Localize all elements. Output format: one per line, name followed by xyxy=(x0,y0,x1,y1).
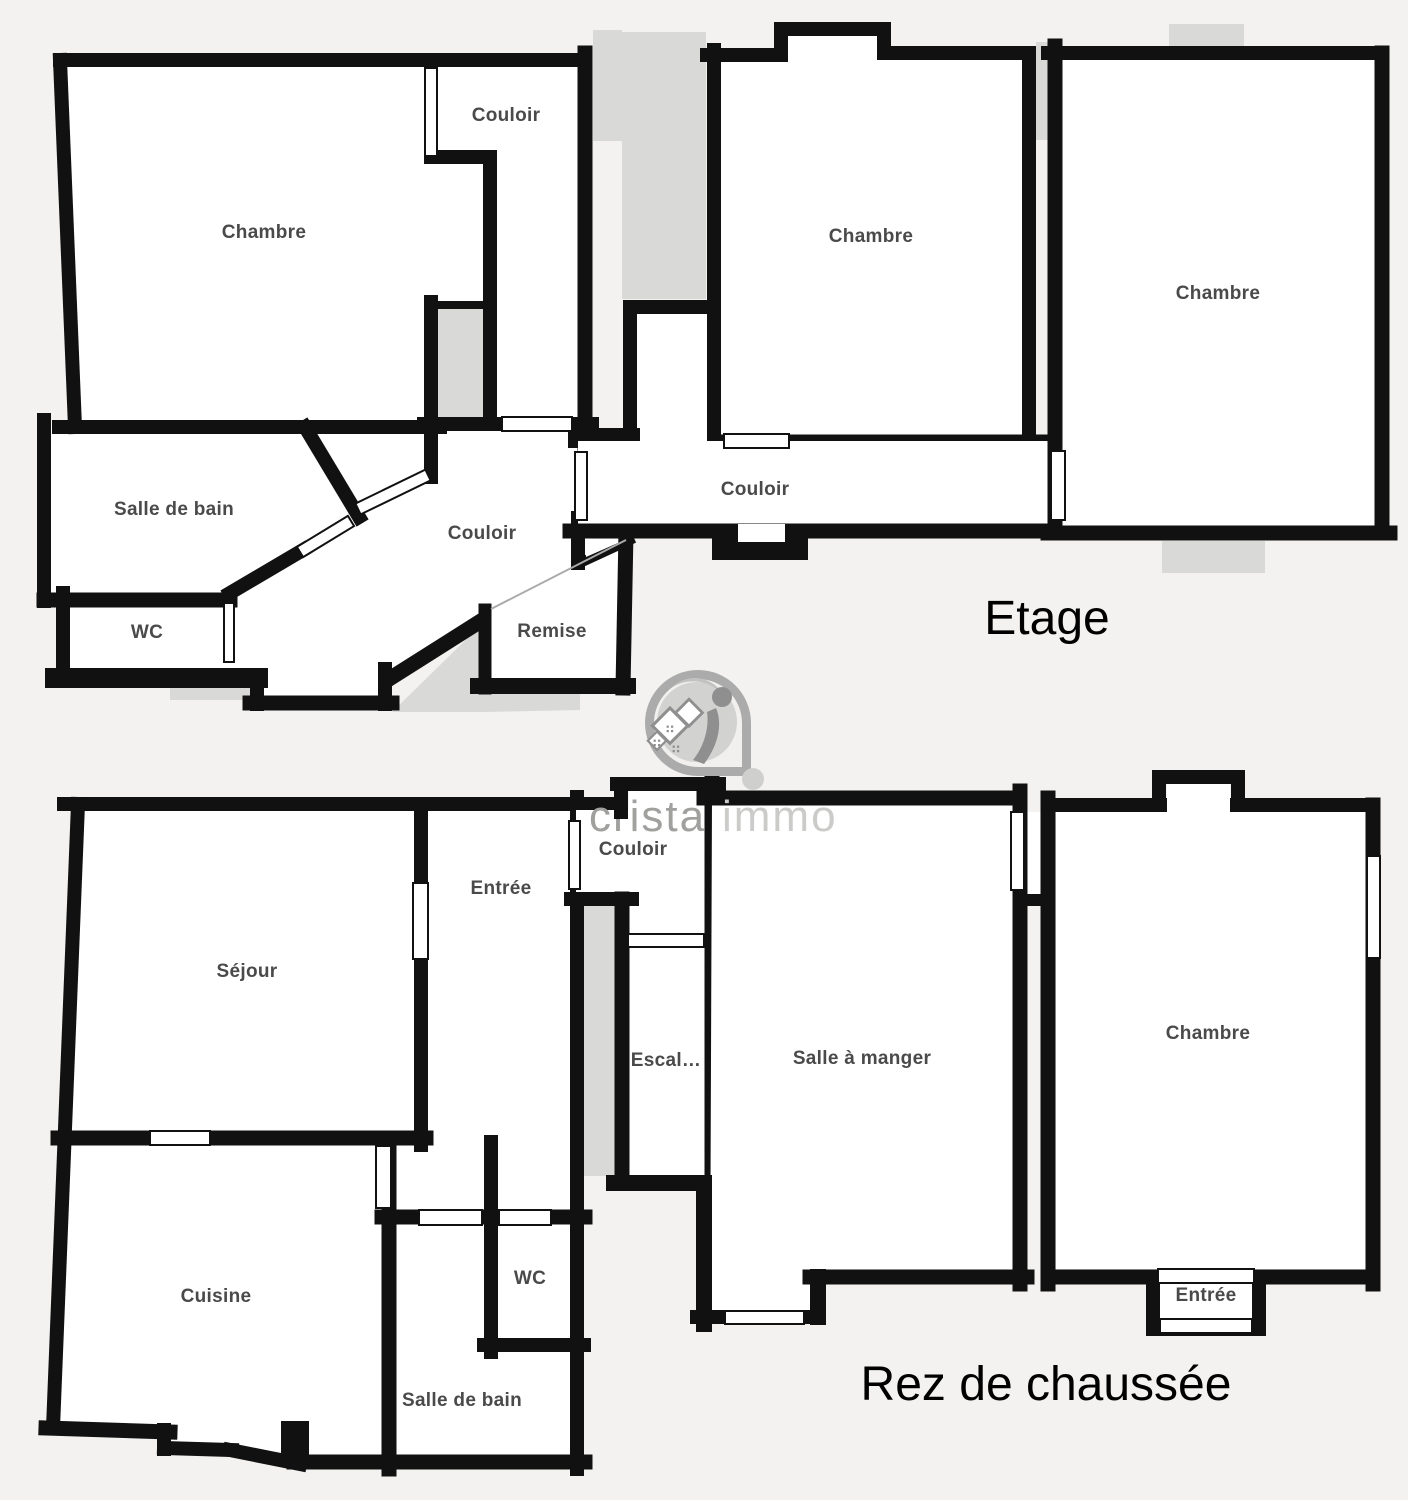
svg-text:Etage: Etage xyxy=(984,592,1109,645)
svg-text:Salle de bain: Salle de bain xyxy=(402,1390,522,1411)
svg-text:Entrée: Entrée xyxy=(471,878,532,899)
svg-text:Salle à manger: Salle à manger xyxy=(793,1048,932,1069)
svg-text:WC: WC xyxy=(514,1268,546,1289)
svg-text:Rez de chaussée: Rez de chaussée xyxy=(861,1358,1232,1411)
svg-text:Chambre: Chambre xyxy=(1176,283,1260,304)
svg-text:Couloir: Couloir xyxy=(599,839,668,860)
svg-text:Salle de bain: Salle de bain xyxy=(114,499,234,520)
svg-text:Couloir: Couloir xyxy=(448,523,517,544)
svg-text:Remise: Remise xyxy=(517,621,586,642)
svg-text:Entrée: Entrée xyxy=(1176,1285,1237,1306)
svg-text:immo: immo xyxy=(722,792,838,841)
svg-text:Séjour: Séjour xyxy=(217,961,278,982)
svg-text:Couloir: Couloir xyxy=(721,479,790,500)
svg-text:Chambre: Chambre xyxy=(1166,1023,1250,1044)
svg-text:WC: WC xyxy=(131,622,163,643)
svg-text:Chambre: Chambre xyxy=(829,226,913,247)
svg-text:Escal…: Escal… xyxy=(631,1050,701,1071)
svg-text:Cuisine: Cuisine xyxy=(181,1286,252,1307)
svg-text:Couloir: Couloir xyxy=(472,105,541,126)
svg-text:Chambre: Chambre xyxy=(222,222,306,243)
